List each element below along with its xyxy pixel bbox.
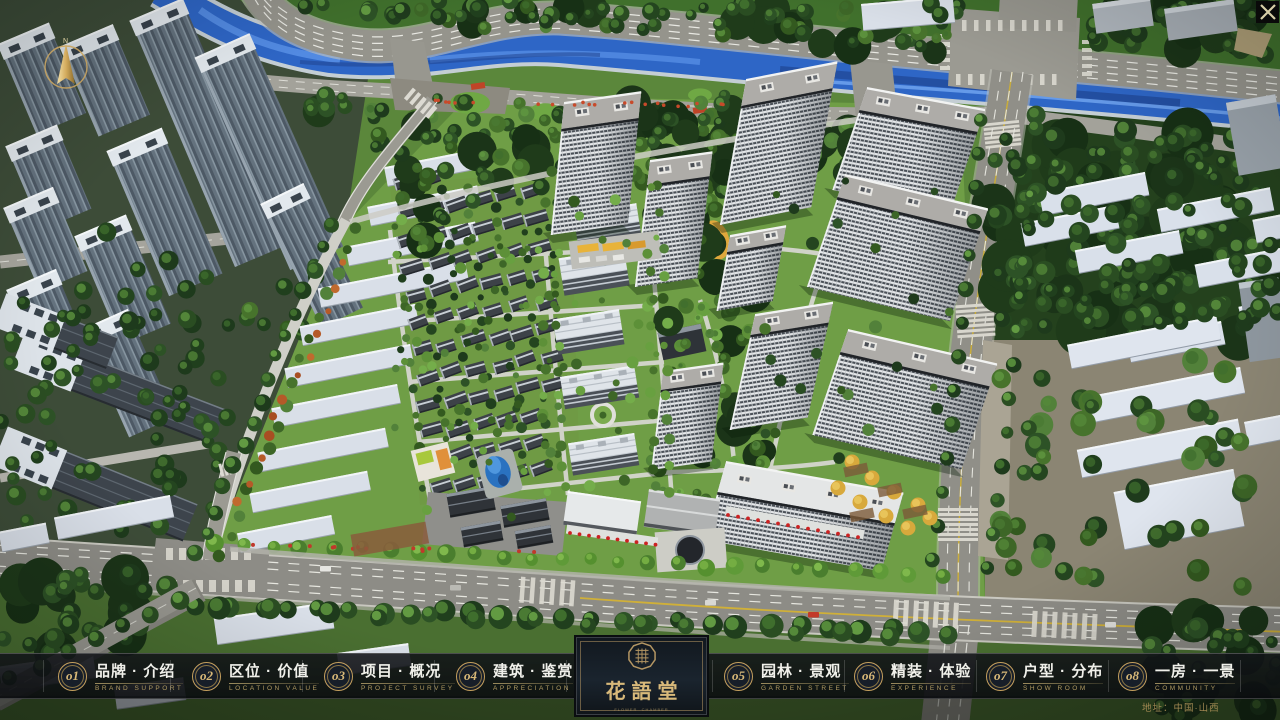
svg-text:N: N: [63, 38, 68, 45]
